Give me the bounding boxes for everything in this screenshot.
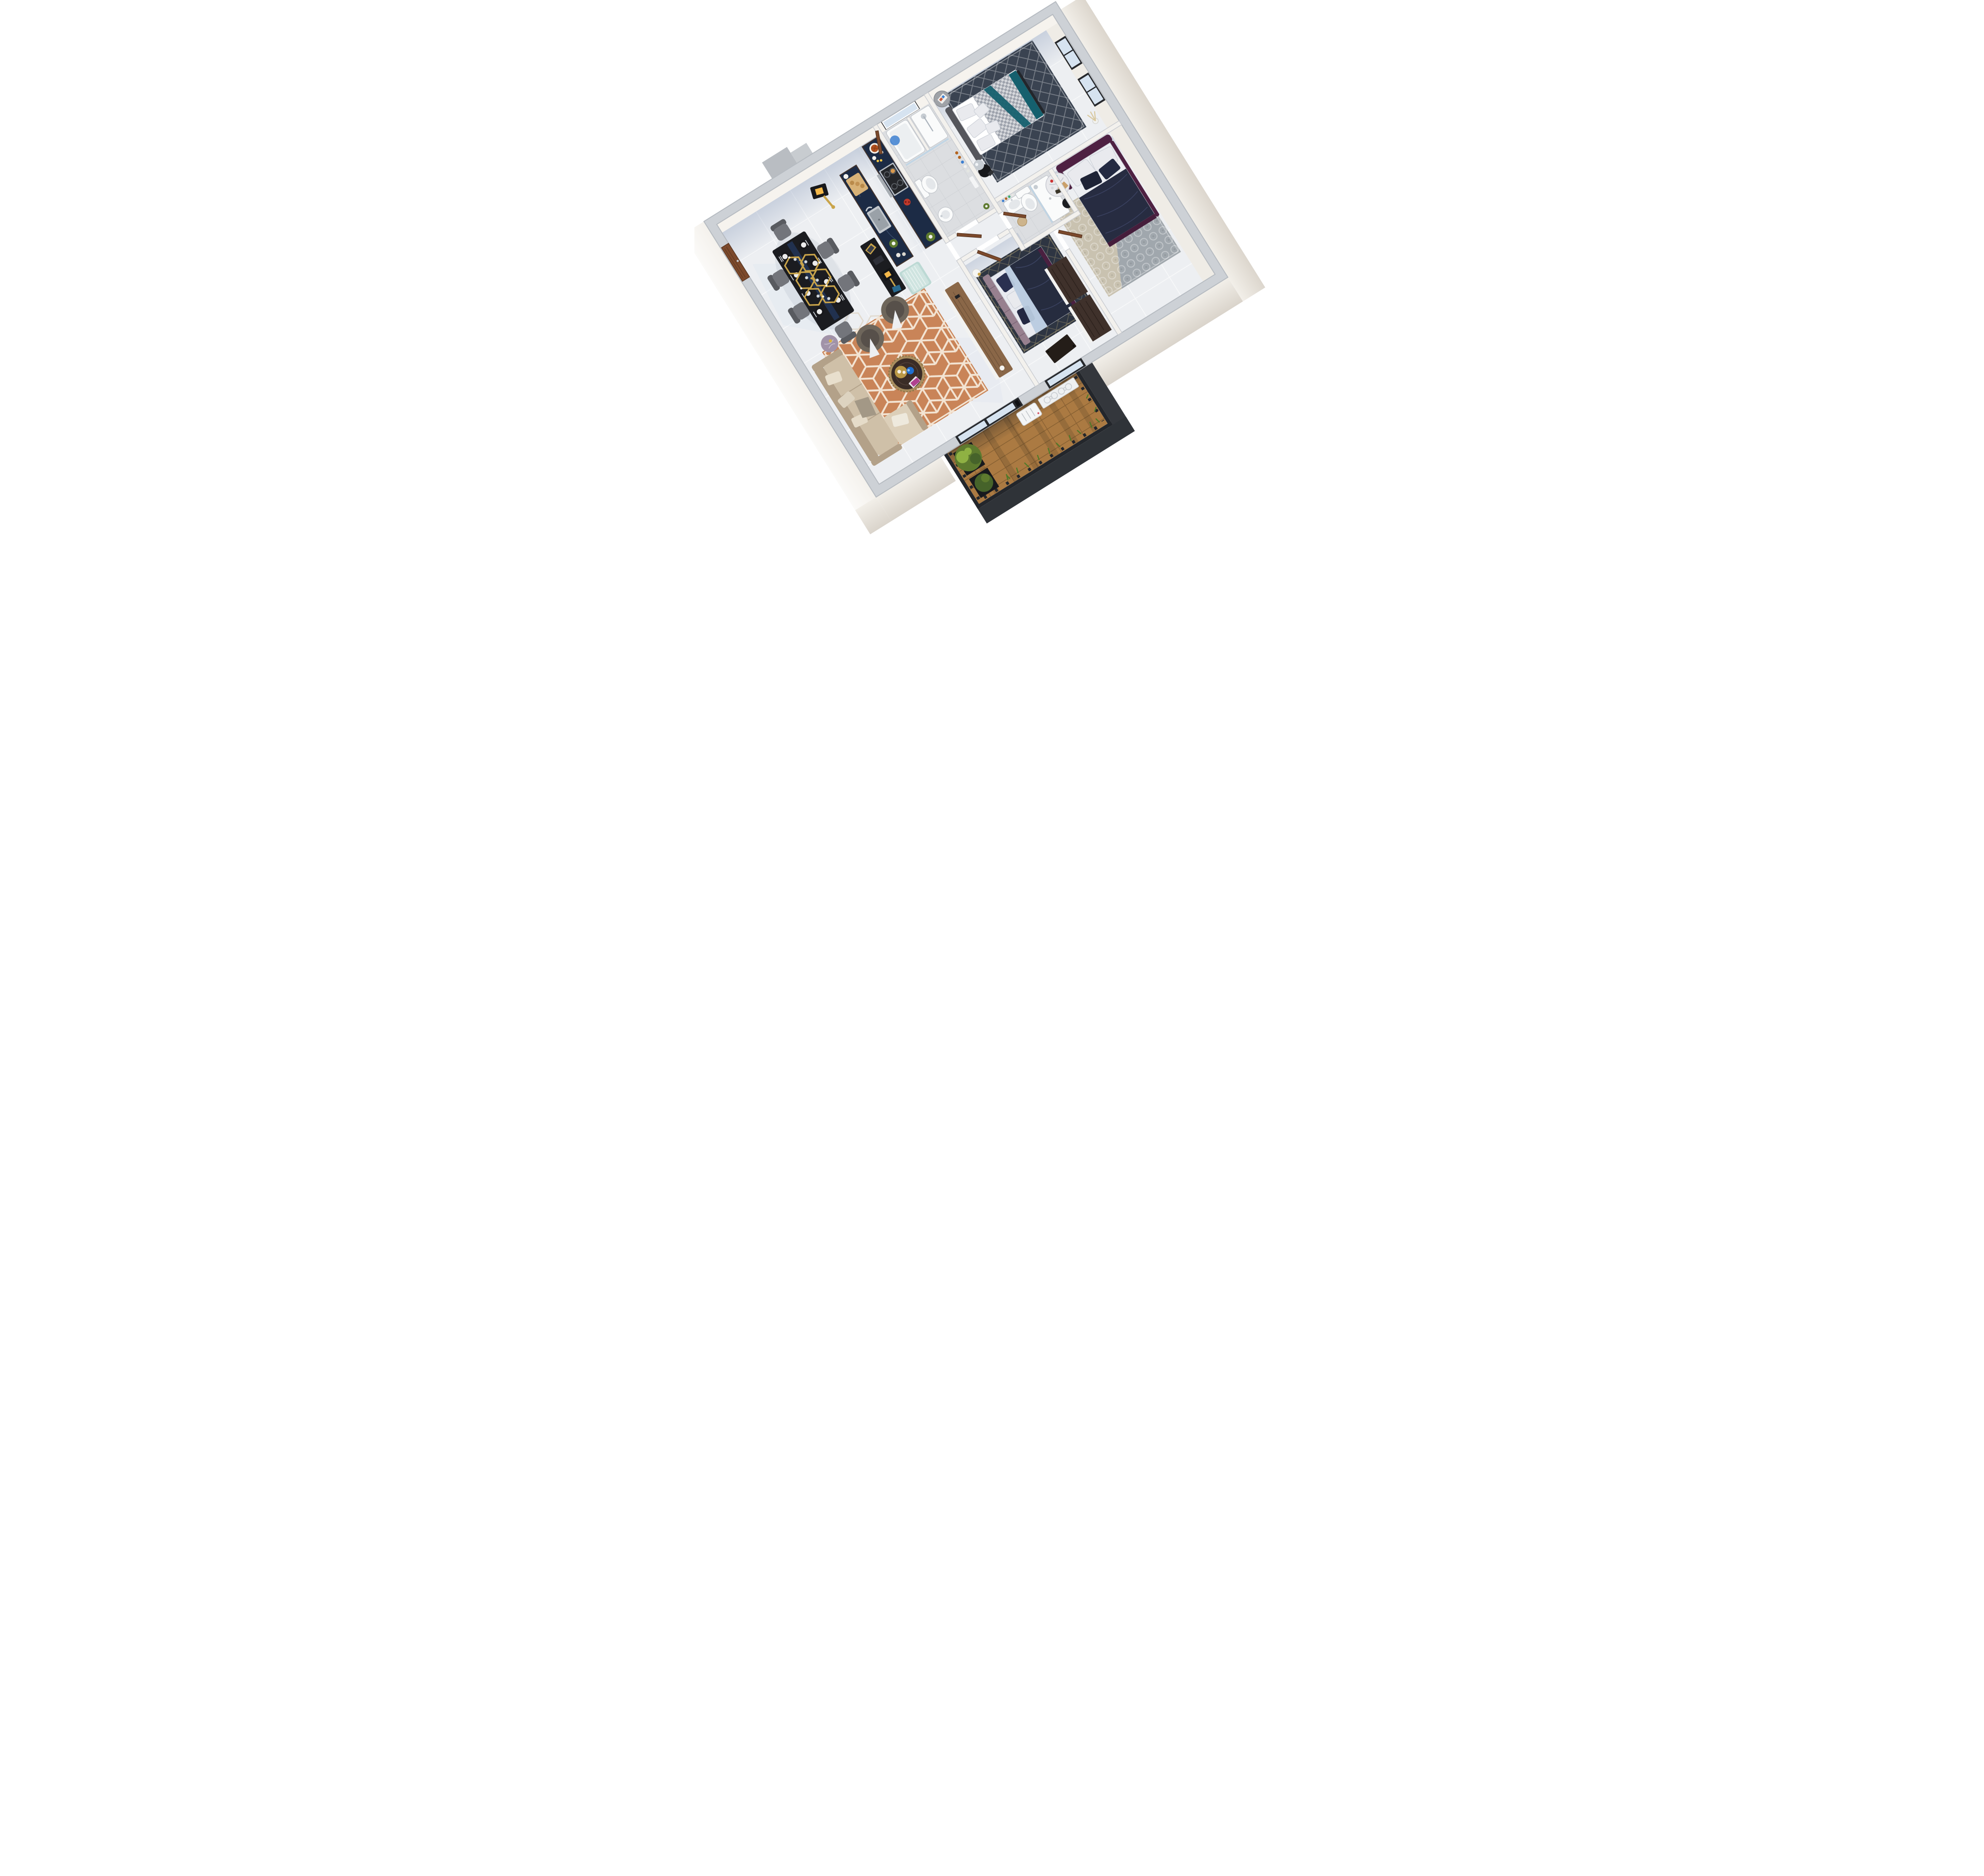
isometric-plan — [694, 0, 1290, 563]
floor-plan-render: Isometric 3D apartment floor plan render — [694, 0, 1290, 563]
floor-plan-stage: Isometric 3D apartment floor plan render — [694, 0, 1290, 563]
